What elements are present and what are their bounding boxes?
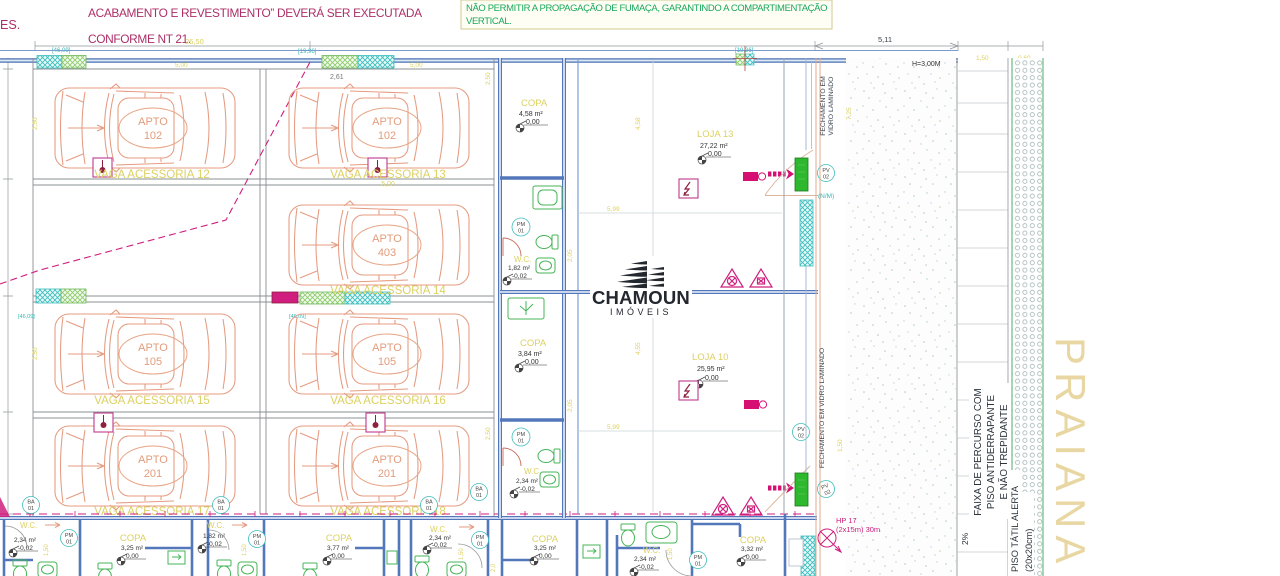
svg-text:2%: 2% [960, 532, 970, 545]
svg-text:VAGA ACESSORIA 12: VAGA ACESSORIA 12 [94, 169, 209, 181]
svg-text:25,95 m²: 25,95 m² [697, 366, 725, 373]
svg-text:5,99: 5,99 [607, 206, 620, 213]
svg-text:PM: PM [517, 222, 526, 228]
svg-text:2,05: 2,05 [567, 249, 574, 262]
svg-text:ES.: ES. [0, 18, 20, 32]
svg-text:VAGA ACESSORIA 14: VAGA ACESSORIA 14 [330, 285, 446, 297]
svg-text:2,34 m²: 2,34 m² [516, 478, 539, 485]
svg-text:COPA: COPA [740, 535, 767, 546]
svg-text:FECHAMENTO EM VIDRO LAMINADO: FECHAMENTO EM VIDRO LAMINADO [819, 348, 826, 468]
svg-text:01: 01 [28, 506, 34, 512]
svg-text:(2x15m) 30m: (2x15m) 30m [836, 525, 880, 534]
svg-text:2,34 m²: 2,34 m² [429, 535, 452, 542]
svg-text:4,58: 4,58 [635, 117, 642, 130]
svg-text:2,50: 2,50 [32, 347, 39, 360]
svg-text:1,50: 1,50 [976, 55, 989, 62]
svg-text:5,00: 5,00 [381, 181, 395, 188]
svg-text:1,50: 1,50 [459, 548, 465, 560]
svg-text:APTO: APTO [372, 233, 402, 245]
svg-text:201: 201 [144, 468, 162, 480]
svg-text:1,50: 1,50 [668, 548, 674, 560]
svg-text:CONFORME NT 21.: CONFORME NT 21. [88, 32, 191, 46]
svg-text:3,25 m²: 3,25 m² [534, 545, 557, 552]
svg-text:COPA: COPA [521, 98, 548, 109]
svg-text:APTO: APTO [372, 116, 402, 128]
svg-text:APTO: APTO [138, 454, 168, 466]
svg-text:102: 102 [144, 130, 162, 142]
svg-text:27,22 m²: 27,22 m² [700, 143, 728, 150]
svg-text:VAGA ACESSORIA 15: VAGA ACESSORIA 15 [94, 395, 209, 407]
svg-text:PISO ANTIDERRAPANTE: PISO ANTIDERRAPANTE [986, 394, 997, 509]
svg-text:COPA: COPA [520, 338, 547, 349]
svg-text:2,50: 2,50 [485, 72, 492, 85]
svg-text:COPA: COPA [532, 534, 559, 545]
svg-text:APTO: APTO [138, 116, 168, 128]
svg-text:H=3,00M: H=3,00M [912, 61, 941, 68]
svg-text:PV: PV [797, 427, 805, 433]
svg-text:2,50: 2,50 [32, 117, 39, 130]
svg-text:LOJA 10: LOJA 10 [692, 352, 728, 363]
svg-text:5,00: 5,00 [175, 62, 188, 69]
svg-text:01: 01 [218, 506, 224, 512]
svg-text:105: 105 [144, 356, 162, 368]
svg-text:(20x20cm): (20x20cm) [1024, 529, 1034, 572]
svg-text:IMÓVEIS: IMÓVEIS [610, 307, 672, 317]
svg-text:ACABAMENTO E REVESTIMENTO” DEV: ACABAMENTO E REVESTIMENTO” DEVERÁ SER EX… [88, 5, 422, 20]
svg-text:APTO: APTO [138, 342, 168, 354]
svg-text:02: 02 [823, 175, 829, 181]
svg-text:403: 403 [378, 247, 396, 259]
svg-text:BA: BA [217, 500, 225, 506]
svg-text:NÃO PERMITIR A PROPAGAÇÃO DE F: NÃO PERMITIR A PROPAGAÇÃO DE FUMAÇA, GAR… [466, 3, 827, 14]
svg-text:VERTICAL.: VERTICAL. [466, 16, 512, 27]
svg-text:1,50: 1,50 [44, 544, 50, 556]
svg-text:4,58 m²: 4,58 m² [519, 111, 543, 118]
svg-text:01: 01 [518, 439, 524, 445]
svg-text:102: 102 [378, 130, 396, 142]
svg-text:3,25 m²: 3,25 m² [121, 545, 144, 552]
svg-text:3,84 m²: 3,84 m² [518, 351, 542, 358]
svg-text:2,50: 2,50 [485, 427, 492, 440]
svg-text:7,25: 7,25 [846, 107, 853, 120]
svg-text:201: 201 [378, 468, 396, 480]
svg-text:COPA: COPA [326, 533, 353, 544]
svg-text:CHAMOUN: CHAMOUN [592, 287, 690, 308]
svg-text:PM: PM [65, 533, 74, 539]
svg-text:PM: PM [253, 534, 262, 540]
svg-text:W.C.: W.C. [207, 521, 224, 530]
svg-text:APTO: APTO [372, 342, 402, 354]
svg-text:1,50: 1,50 [242, 544, 248, 556]
svg-text:W.C.: W.C. [514, 255, 531, 264]
svg-text:5,99: 5,99 [607, 424, 620, 431]
svg-text:02: 02 [798, 434, 804, 440]
svg-text:3,32 m²: 3,32 m² [741, 546, 764, 553]
svg-text:[46,09]: [46,09] [18, 314, 35, 320]
svg-text:W.C.: W.C. [524, 467, 541, 476]
svg-text:01: 01 [254, 541, 260, 547]
svg-text:VAGA ACESSORIA 13: VAGA ACESSORIA 13 [330, 169, 445, 181]
svg-text:01: 01 [518, 229, 524, 235]
svg-text:FAIXA DE PERCURSO COM: FAIXA DE PERCURSO COM [973, 388, 984, 515]
svg-text:2,05: 2,05 [567, 399, 574, 412]
svg-text:5,00: 5,00 [410, 62, 423, 69]
svg-text:HP 17: HP 17 [836, 516, 857, 525]
svg-text:APTO: APTO [372, 454, 402, 466]
svg-text:2,61: 2,61 [330, 74, 344, 81]
svg-text:1,82 m²: 1,82 m² [203, 533, 226, 540]
svg-text:1,50: 1,50 [837, 439, 844, 452]
svg-text:5,11: 5,11 [878, 35, 892, 44]
svg-text:PM: PM [517, 432, 526, 438]
svg-text:2,0: 2,0 [491, 563, 497, 572]
svg-text:PISO TÁTIL ALERTA: PISO TÁTIL ALERTA [1010, 485, 1020, 572]
svg-text:01: 01 [426, 506, 432, 512]
svg-text:BA: BA [475, 487, 483, 493]
svg-text:W.C.: W.C. [20, 521, 37, 530]
svg-text:FECHAMENTO EM: FECHAMENTO EM [820, 76, 827, 136]
svg-text:COPA: COPA [120, 533, 147, 544]
svg-text:2,34 m²: 2,34 m² [634, 556, 657, 563]
svg-text:VIDRO LAMINADO: VIDRO LAMINADO [828, 77, 835, 136]
svg-text:BA: BA [27, 500, 35, 506]
svg-text:BA: BA [425, 500, 433, 506]
svg-text:W.C.: W.C. [643, 546, 660, 555]
svg-text:[19,96]: [19,96] [298, 49, 317, 55]
svg-text:01: 01 [66, 540, 72, 546]
svg-text:W.C.: W.C. [430, 525, 447, 534]
svg-text:LOJA 13: LOJA 13 [697, 129, 733, 140]
svg-text:1,82 m²: 1,82 m² [508, 265, 531, 272]
svg-text:4,55: 4,55 [635, 342, 642, 355]
svg-text:PV: PV [822, 168, 830, 174]
svg-text:105: 105 [378, 356, 396, 368]
svg-text:01: 01 [476, 493, 482, 499]
svg-text:PM: PM [694, 555, 703, 561]
svg-text:26,50: 26,50 [185, 37, 204, 46]
svg-text:3,77 m²: 3,77 m² [327, 545, 350, 552]
svg-text:01: 01 [695, 562, 701, 568]
svg-text:VAGA ACESSORIA 16: VAGA ACESSORIA 16 [330, 395, 445, 407]
svg-text:PM: PM [476, 535, 485, 541]
svg-text:PRAIANA: PRAIANA [1047, 337, 1094, 570]
svg-text:01: 01 [477, 542, 483, 548]
